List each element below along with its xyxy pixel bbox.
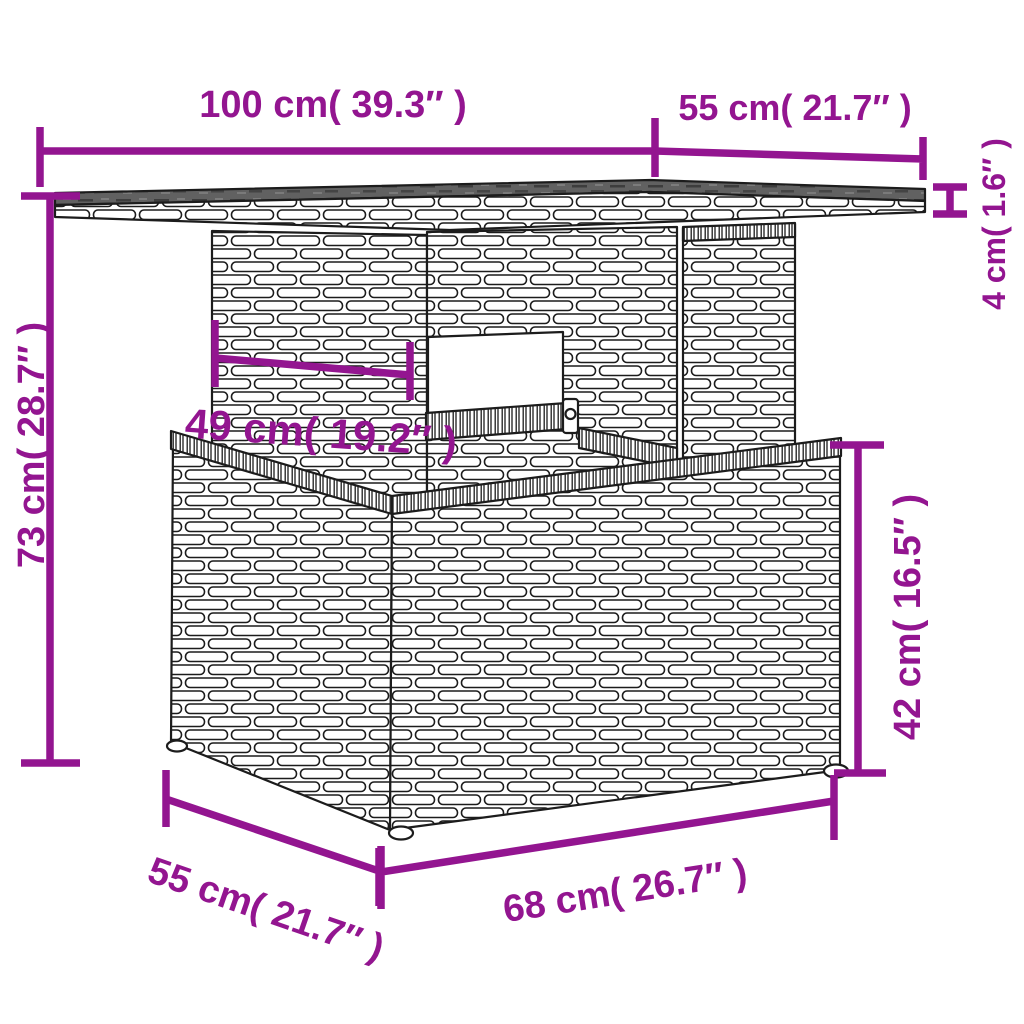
dim-base-height: 42 cm( 16.5″ ) — [830, 445, 929, 773]
dim-top-thickness-line — [933, 187, 967, 214]
base-box — [167, 431, 848, 840]
dim-base-depth-label: 55 cm( 21.7″ ) — [143, 850, 390, 970]
dim-overall-height-label: 73 cm( 28.7″ ) — [11, 322, 53, 568]
dim-table-depth-line — [655, 137, 923, 180]
product-dimension-diagram: 100 cm( 39.3″ ) 55 cm( 21.7″ ) 4 cm( 1.6… — [0, 0, 1024, 1024]
dim-base-width-label: 68 cm( 26.7″ ) — [500, 851, 750, 931]
pedestal-right-column — [683, 224, 795, 475]
dim-top-thickness: 4 cm( 1.6″ ) — [933, 138, 1012, 310]
table-illustration — [55, 180, 925, 840]
dim-table-width: 100 cm( 39.3″ ) — [40, 84, 655, 187]
dim-table-width-line — [40, 118, 655, 187]
base-foot-front-left — [389, 827, 413, 840]
dim-table-depth: 55 cm( 21.7″ ) — [655, 87, 923, 180]
pedestal-right-column-rim — [683, 223, 795, 241]
dim-overall-height: 73 cm( 28.7″ ) — [11, 196, 80, 763]
crossbar-bolt — [566, 409, 576, 419]
base-foot-back-left — [167, 741, 187, 752]
dim-base-height-label: 42 cm( 16.5″ ) — [887, 494, 929, 740]
dim-top-thickness-label: 4 cm( 1.6″ ) — [976, 138, 1012, 310]
dim-table-width-label: 100 cm( 39.3″ ) — [199, 84, 466, 126]
dim-table-depth-label: 55 cm( 21.7″ ) — [678, 87, 911, 128]
